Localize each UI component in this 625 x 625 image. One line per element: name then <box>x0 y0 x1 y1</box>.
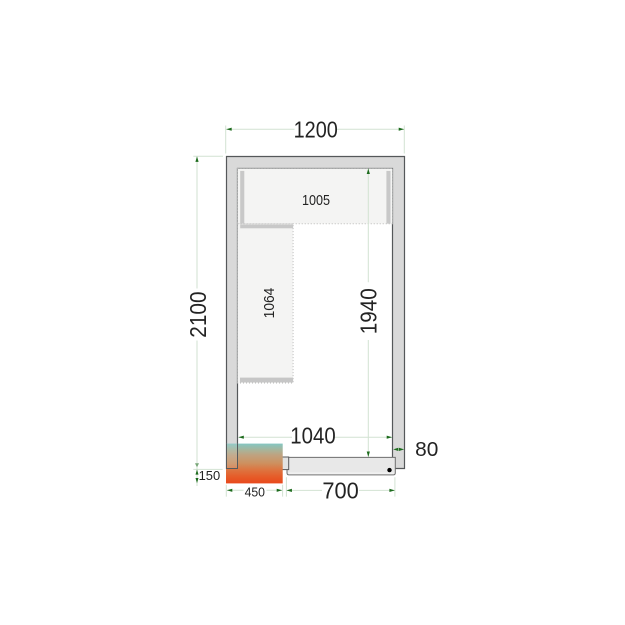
svg-text:150: 150 <box>199 468 221 483</box>
svg-text:450: 450 <box>245 485 265 500</box>
svg-text:80: 80 <box>415 439 438 461</box>
svg-text:700: 700 <box>322 477 358 503</box>
svg-text:1040: 1040 <box>290 423 335 449</box>
svg-text:2100: 2100 <box>185 292 211 338</box>
svg-text:1005: 1005 <box>302 192 330 209</box>
svg-text:1200: 1200 <box>294 116 338 142</box>
svg-text:1940: 1940 <box>355 288 381 334</box>
svg-text:1064: 1064 <box>262 288 278 319</box>
